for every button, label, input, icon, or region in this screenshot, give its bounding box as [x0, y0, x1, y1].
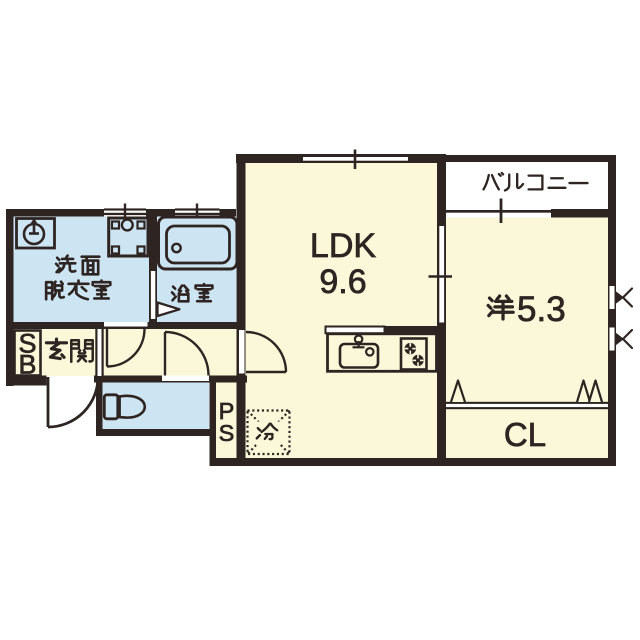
- svg-text:B: B: [18, 350, 36, 380]
- svg-text:5.3: 5.3: [517, 290, 566, 329]
- svg-text:S: S: [219, 420, 235, 446]
- svg-text:CL: CL: [504, 416, 546, 453]
- svg-text:9.6: 9.6: [319, 263, 366, 301]
- svg-text:LDK: LDK: [310, 227, 376, 265]
